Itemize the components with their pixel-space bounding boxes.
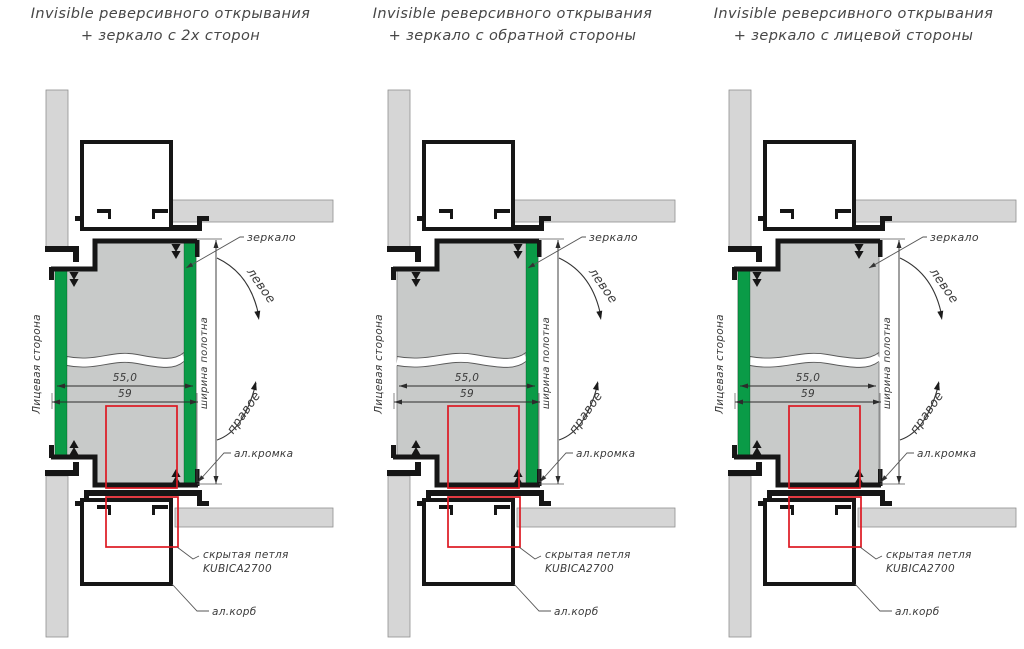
diagram-3-drawing: 55,059ширина полотнаЛицевая стороназерка…: [683, 0, 1024, 649]
leaf-lip: [732, 267, 737, 280]
wall-bottom: [729, 476, 751, 637]
leaf-lip: [49, 445, 54, 458]
dim-arrow-icon: [214, 476, 219, 484]
panel-width-label: ширина полотна: [199, 317, 210, 409]
clip-icon: [450, 505, 453, 515]
al-box-label: ал.корб: [212, 606, 257, 618]
frame-bracket-top: [45, 246, 79, 252]
frame-bracket-bottom: [73, 462, 79, 471]
wall-bar-right-bottom: [175, 508, 333, 527]
leaf-lip: [732, 445, 737, 458]
front-side-label: Лицевая сторона: [373, 314, 385, 415]
dim-arrow-icon: [897, 240, 902, 248]
frame-tray-top: [544, 216, 551, 221]
leaf-lip: [537, 240, 542, 257]
frame-tray-bottom: [197, 496, 202, 506]
swing-arrow-icon: [254, 311, 260, 320]
diagram-1-drawing: 55,059ширина полотнаЛицевая стороназерка…: [0, 0, 341, 649]
wall-bar-right-top: [171, 200, 333, 222]
frame-tray-bottom: [426, 490, 544, 496]
wall-bar-right-bottom: [858, 508, 1016, 527]
clip-icon: [494, 209, 497, 219]
leaf-lip: [878, 240, 883, 257]
frame-tray-top: [202, 216, 209, 221]
al-box-label: ал.корб: [554, 606, 599, 618]
al-box-bottom: [424, 500, 513, 584]
dim-value-55: 55,0: [455, 372, 480, 384]
clip-icon: [108, 505, 111, 515]
swing-left-label: левое: [586, 264, 622, 306]
mirror-front-strip: [55, 270, 67, 456]
dim-arrow-icon: [214, 240, 219, 248]
hidden-hinge-label: скрытая петля: [886, 549, 972, 561]
frame-bracket-top: [387, 246, 421, 252]
wall-top: [388, 90, 410, 247]
frame-bracket-top: [415, 252, 421, 262]
frame-tray-bottom: [202, 501, 209, 506]
wall-bottom: [388, 476, 410, 637]
swing-right-label: правое: [223, 388, 263, 436]
wall-bottom: [46, 476, 68, 637]
swing-arrow-icon: [596, 311, 602, 320]
dim-value-59: 59: [118, 388, 132, 400]
al-box-leader: [855, 584, 892, 611]
al-box-label: ал.корб: [895, 606, 940, 618]
frame-bracket-bottom: [756, 462, 762, 471]
swing-arrow-icon: [937, 311, 943, 320]
clip-icon: [152, 505, 155, 515]
dim-value-59: 59: [801, 388, 815, 400]
frame-tray-top: [885, 216, 892, 221]
clip-icon: [791, 209, 794, 219]
drawing-sheet: Invisible реверсивного открывания + зерк…: [0, 0, 1024, 649]
hidden-hinge-leader: [519, 547, 541, 559]
al-edge-label: ал.кромка: [576, 448, 635, 460]
frame-tray-top: [539, 216, 544, 226]
front-side-label: Лицевая сторона: [31, 314, 43, 415]
wall-bar-right-bottom: [517, 508, 675, 527]
al-box-bottom: [765, 500, 854, 584]
clip-icon: [494, 505, 497, 515]
frame-tray-bottom: [767, 490, 885, 496]
swing-right-label: правое: [565, 388, 605, 436]
frame-tray-bottom: [539, 496, 544, 506]
dim-value-59: 59: [460, 388, 474, 400]
mirror-front-strip: [738, 270, 750, 456]
mirror-back-strip: [184, 242, 196, 485]
leaf-lip: [391, 267, 396, 280]
wall-bar-right-top: [854, 200, 1016, 222]
mirror-back-strip: [526, 242, 538, 485]
leaf-lip: [195, 240, 200, 257]
frame-tray-top: [197, 216, 202, 226]
hinge-model-label: KUBICA2700: [545, 563, 614, 575]
clip-icon: [450, 209, 453, 219]
wall-bar-right-top: [513, 200, 675, 222]
frame-tray-bottom: [544, 501, 551, 506]
mirror-label: зеркало: [589, 231, 638, 244]
swing-right-label: правое: [906, 388, 946, 436]
frame-bracket-bottom: [415, 462, 421, 471]
dim-value-55: 55,0: [113, 372, 138, 384]
mirror-label: зеркало: [247, 231, 296, 244]
clip-icon: [108, 209, 111, 219]
front-side-label: Лицевая сторона: [714, 314, 726, 415]
al-edge-label: ал.кромка: [917, 448, 976, 460]
clip-icon: [152, 209, 155, 219]
dim-value-55: 55,0: [796, 372, 821, 384]
al-box-bottom: [82, 500, 171, 584]
diagram-2-drawing: 55,059ширина полотнаЛицевая стороназерка…: [342, 0, 683, 649]
wall-top: [729, 90, 751, 247]
leaf-lip: [49, 267, 54, 280]
clip-icon: [791, 505, 794, 515]
panel-width-label: ширина полотна: [541, 317, 552, 409]
clip-icon: [835, 209, 838, 219]
hidden-hinge-leader: [860, 547, 882, 559]
hinge-model-label: KUBICA2700: [886, 563, 955, 575]
panel-width-label: ширина полотна: [882, 317, 893, 409]
hidden-hinge-label: скрытая петля: [545, 549, 631, 561]
frame-bracket-top: [73, 252, 79, 262]
mirror-label: зеркало: [930, 231, 979, 244]
al-box-top: [82, 142, 171, 229]
wall-top: [46, 90, 68, 247]
frame-tray-top: [880, 216, 885, 226]
leaf-lip: [391, 445, 396, 458]
frame-bracket-top: [728, 246, 762, 252]
al-edge-label: ал.кромка: [234, 448, 293, 460]
dim-arrow-icon: [556, 476, 561, 484]
hidden-hinge-label: скрытая петля: [203, 549, 289, 561]
hinge-model-label: KUBICA2700: [203, 563, 272, 575]
swing-left-label: левое: [244, 264, 280, 306]
al-box-leader: [172, 584, 209, 611]
frame-tray-bottom: [880, 496, 885, 506]
frame-tray-bottom: [84, 490, 202, 496]
al-box-top: [765, 142, 854, 229]
frame-tray-bottom: [885, 501, 892, 506]
frame-bracket-top: [756, 252, 762, 262]
dim-arrow-icon: [897, 476, 902, 484]
dim-arrow-icon: [556, 240, 561, 248]
swing-left-label: левое: [927, 264, 963, 306]
clip-icon: [835, 505, 838, 515]
hidden-hinge-leader: [177, 547, 199, 559]
al-box-top: [424, 142, 513, 229]
al-box-leader: [514, 584, 551, 611]
